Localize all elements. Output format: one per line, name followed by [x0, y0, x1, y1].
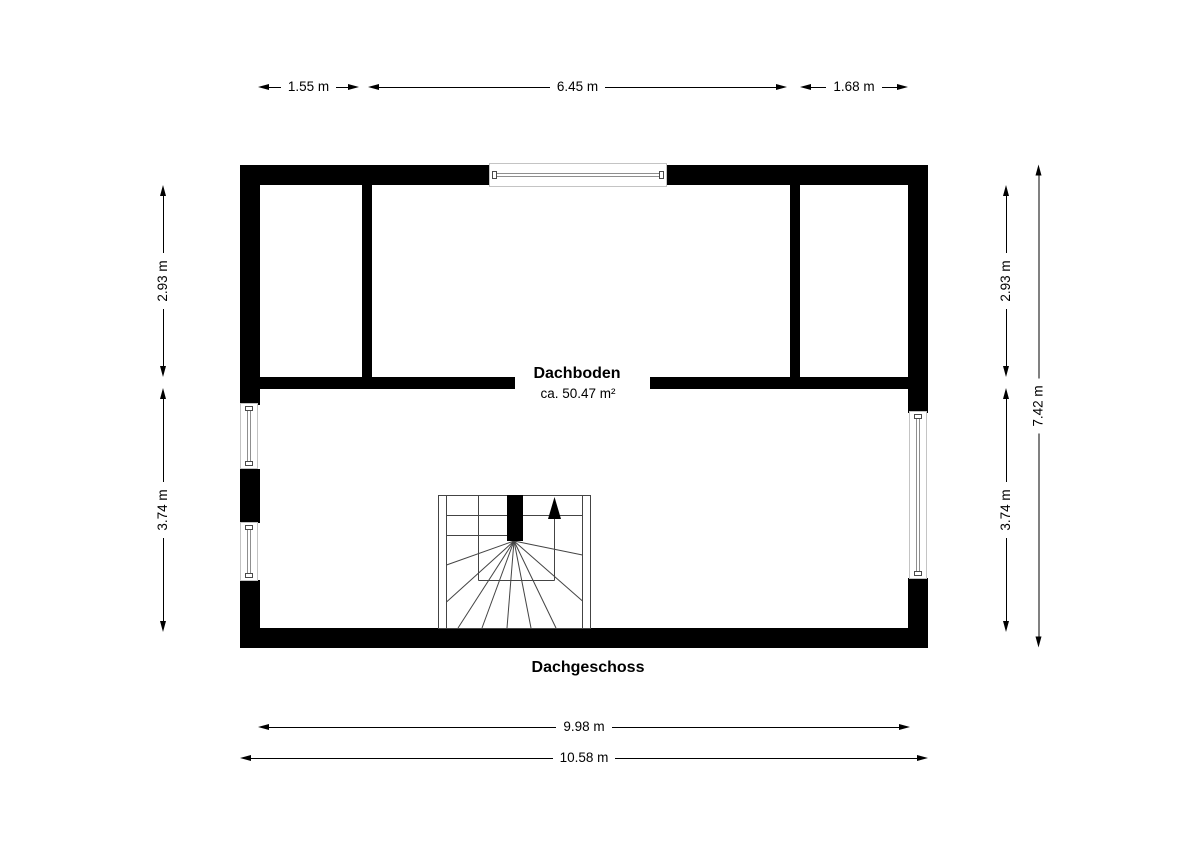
- room-area-label: ca. 50.47 m²: [540, 386, 615, 401]
- window-right: [909, 411, 927, 579]
- arrow-left-icon: [258, 724, 269, 730]
- arrow-left-icon: [1036, 637, 1042, 648]
- arrow-left-icon: [160, 366, 166, 377]
- dim-label: 6.45 m: [550, 79, 605, 95]
- window-glass: [916, 416, 920, 574]
- window-left-upper: [240, 403, 258, 469]
- arrow-right-icon: [899, 724, 910, 730]
- floorplan-canvas: 1.55 m 6.45 m 1.68 m 2.93 m 3.74 m 2.93 …: [0, 0, 1200, 848]
- arrow-left-icon: [800, 84, 811, 90]
- arrow-right-icon: [776, 84, 787, 90]
- dim-label: 10.58 m: [553, 750, 616, 766]
- arrow-left-icon: [1003, 366, 1009, 377]
- arrow-left-icon: [160, 621, 166, 632]
- wall-top-left-segment: [240, 165, 490, 185]
- dim-bottom-outer: 10.58 m: [240, 750, 928, 766]
- dim-label: 3.74 m: [998, 482, 1014, 537]
- dim-label: 7.42 m: [1031, 378, 1047, 433]
- arrow-right-icon: [1036, 165, 1042, 176]
- wall-bottom: [240, 628, 928, 648]
- dim-left-upper: 2.93 m: [155, 185, 171, 377]
- wall-interior-horizontal-left: [240, 377, 515, 389]
- stair-newel: [507, 495, 523, 541]
- arrow-left-icon: [258, 84, 269, 90]
- arrow-right-icon: [917, 755, 928, 761]
- arrow-right-icon: [348, 84, 359, 90]
- window-glass: [494, 173, 662, 177]
- room-name-label: Dachboden: [533, 365, 620, 383]
- wall-right-upper: [908, 165, 928, 413]
- arrow-right-icon: [160, 185, 166, 196]
- window-cap: [245, 525, 253, 530]
- dim-top-left: 1.55 m: [258, 79, 359, 95]
- dim-top-middle: 6.45 m: [368, 79, 787, 95]
- window-cap: [245, 573, 253, 578]
- floor-title: Dachgeschoss: [532, 659, 645, 677]
- wall-left-pier: [240, 469, 260, 523]
- dim-right-overall: 7.42 m: [1031, 165, 1047, 648]
- dim-bottom-inner: 9.98 m: [258, 719, 910, 735]
- wall-interior-vertical-right: [790, 185, 800, 383]
- dim-top-right: 1.68 m: [800, 79, 908, 95]
- dim-label: 9.98 m: [556, 719, 611, 735]
- window-left-lower: [240, 522, 258, 581]
- dim-label: 1.68 m: [826, 79, 881, 95]
- window-cap: [245, 406, 253, 411]
- arrow-right-icon: [1003, 388, 1009, 399]
- window-top: [489, 163, 667, 187]
- window-cap: [245, 461, 253, 466]
- dim-label: 3.74 m: [155, 482, 171, 537]
- dim-label: 2.93 m: [998, 253, 1014, 308]
- arrow-right-icon: [160, 388, 166, 399]
- wall-left-upper: [240, 165, 260, 405]
- window-glass: [247, 527, 251, 576]
- dim-right-upper: 2.93 m: [998, 185, 1014, 377]
- window-cap: [659, 171, 664, 179]
- window-cap: [492, 171, 497, 179]
- window-cap: [914, 414, 922, 419]
- dim-label: 2.93 m: [155, 253, 171, 308]
- arrow-right-icon: [897, 84, 908, 90]
- window-cap: [914, 571, 922, 576]
- wall-interior-horizontal-right: [650, 377, 928, 389]
- wall-interior-vertical-left: [362, 185, 372, 383]
- arrow-left-icon: [240, 755, 251, 761]
- dim-right-lower: 3.74 m: [998, 388, 1014, 632]
- arrow-left-icon: [1003, 621, 1009, 632]
- arrow-right-icon: [1003, 185, 1009, 196]
- staircase: [438, 495, 591, 629]
- window-glass: [247, 408, 251, 464]
- arrow-left-icon: [368, 84, 379, 90]
- dim-label: 1.55 m: [281, 79, 336, 95]
- wall-top-right-segment: [667, 165, 928, 185]
- dim-left-lower: 3.74 m: [155, 388, 171, 632]
